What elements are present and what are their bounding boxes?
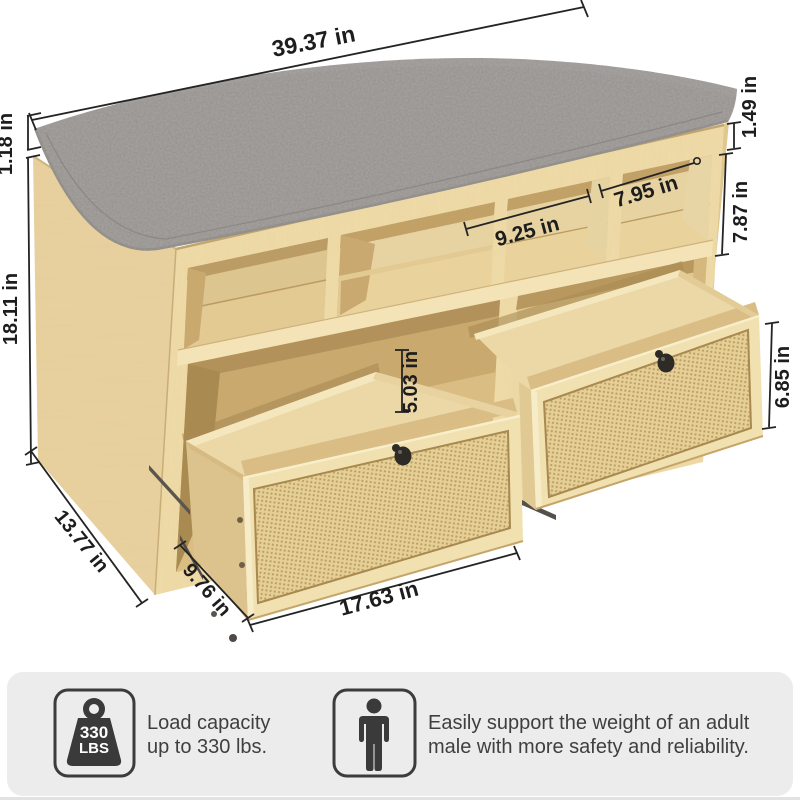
- svg-text:male with more safety and reli: male with more safety and reliability.: [428, 736, 749, 758]
- svg-text:6.85 in: 6.85 in: [772, 346, 794, 408]
- svg-text:Easily support the weight of a: Easily support the weight of an adult: [428, 712, 750, 734]
- svg-text:up to 330 lbs.: up to 330 lbs.: [147, 736, 267, 758]
- svg-text:1.18 in: 1.18 in: [0, 113, 17, 175]
- svg-text:18.11 in: 18.11 in: [0, 273, 22, 345]
- svg-text:Load capacity: Load capacity: [147, 712, 270, 734]
- svg-text:5.03 in: 5.03 in: [400, 351, 422, 413]
- svg-text:7.87 in: 7.87 in: [730, 181, 752, 243]
- svg-text:LBS: LBS: [79, 740, 109, 757]
- svg-text:1.49 in: 1.49 in: [739, 76, 761, 138]
